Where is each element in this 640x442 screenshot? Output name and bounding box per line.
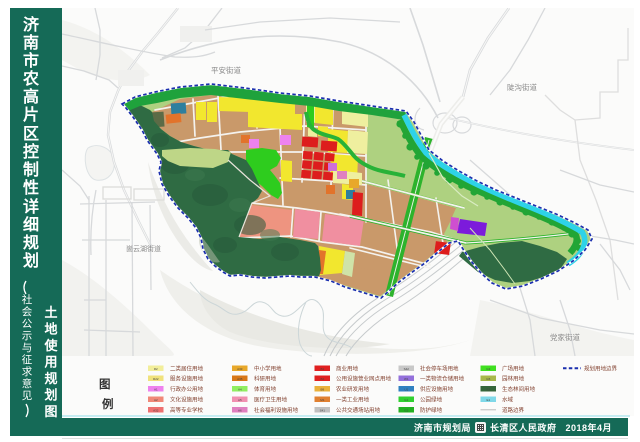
svg-text:图: 图	[44, 404, 57, 419]
svg-text:体育用地: 体育用地	[254, 385, 277, 393]
svg-text:G2: G2	[404, 409, 408, 413]
svg-text:规划用地边界: 规划用地边界	[584, 365, 618, 373]
svg-text:文化设施用地: 文化设施用地	[170, 396, 204, 404]
svg-text:求: 求	[22, 366, 33, 378]
svg-text:A6: A6	[238, 409, 242, 413]
svg-text:R22: R22	[153, 377, 159, 381]
svg-text:S42: S42	[404, 367, 410, 371]
svg-text:A2: A2	[154, 398, 158, 402]
svg-text:图: 图	[99, 377, 111, 391]
svg-text:与: 与	[22, 342, 33, 354]
svg-text:医疗卫生用地: 医疗卫生用地	[254, 396, 288, 404]
svg-text:征: 征	[22, 354, 33, 366]
svg-text:公共交通场站用地: 公共交通场站用地	[336, 406, 381, 414]
svg-text:B9: B9	[320, 388, 324, 392]
svg-text:会: 会	[22, 305, 33, 318]
svg-text:见: 见	[22, 390, 33, 402]
svg-text:农业研发用地: 农业研发用地	[336, 385, 370, 393]
svg-text:规: 规	[44, 371, 57, 386]
svg-text:社会福利设施用地: 社会福利设施用地	[254, 406, 299, 414]
svg-text:高: 高	[23, 87, 39, 106]
svg-text:S41: S41	[320, 409, 326, 413]
svg-text:A32: A32	[153, 409, 159, 413]
svg-text:水域: 水域	[502, 396, 514, 404]
svg-text:用: 用	[43, 355, 57, 370]
svg-text:平安街道: 平安街道	[211, 65, 241, 75]
svg-text:细: 细	[23, 215, 39, 234]
svg-text:例: 例	[102, 397, 114, 411]
svg-text:制: 制	[23, 161, 39, 179]
svg-text:控: 控	[23, 142, 39, 161]
svg-text:意: 意	[22, 377, 33, 390]
svg-text:详: 详	[23, 197, 39, 216]
svg-text:地: 地	[44, 322, 57, 337]
svg-text:G5: G5	[486, 377, 490, 381]
svg-text:一类工业用地: 一类工业用地	[336, 396, 370, 404]
svg-text:行政办公用地: 行政办公用地	[170, 385, 204, 393]
svg-text:广场用地: 广场用地	[502, 365, 525, 373]
svg-text:陡沟街道: 陡沟街道	[507, 82, 537, 92]
svg-text:A5: A5	[238, 398, 242, 402]
svg-text:M1: M1	[320, 398, 324, 402]
svg-text:服务设施用地: 服务设施用地	[170, 375, 204, 383]
svg-text:公: 公	[22, 318, 33, 330]
svg-text:社: 社	[22, 293, 33, 306]
svg-text:A4: A4	[238, 388, 242, 392]
svg-text:划: 划	[44, 388, 57, 403]
svg-text:土: 土	[44, 305, 57, 320]
svg-text:中小学用地: 中小学用地	[254, 365, 282, 373]
svg-text:公园绿地: 公园绿地	[420, 396, 443, 404]
svg-text:园林用地: 园林用地	[502, 375, 525, 383]
svg-text:B4: B4	[320, 377, 324, 381]
svg-text:G3: G3	[486, 367, 490, 371]
svg-text:农: 农	[22, 69, 39, 88]
svg-text:崮云湖街道: 崮云湖街道	[126, 244, 161, 253]
svg-text:科研用地: 科研用地	[254, 375, 277, 383]
svg-text:R2: R2	[154, 367, 158, 371]
svg-text:二类居住用地: 二类居住用地	[170, 365, 204, 373]
svg-text:U1: U1	[404, 388, 408, 392]
svg-text:示: 示	[22, 330, 33, 342]
svg-text:B1: B1	[320, 367, 324, 371]
svg-text:区: 区	[23, 125, 39, 143]
svg-text:南: 南	[23, 33, 39, 52]
svg-text:划: 划	[23, 251, 39, 270]
svg-text:供应设施用地: 供应设施用地	[420, 385, 454, 393]
svg-text:A1: A1	[154, 388, 158, 392]
svg-text:E2: E2	[486, 388, 490, 392]
svg-text:片: 片	[23, 105, 39, 124]
svg-text:A35: A35	[237, 377, 243, 381]
svg-text:公用设施营业网点用地: 公用设施营业网点用地	[336, 375, 392, 383]
svg-text:规: 规	[23, 234, 39, 252]
svg-text:使: 使	[43, 338, 58, 353]
svg-text:社会停车场用地: 社会停车场用地	[420, 365, 459, 373]
svg-text:性: 性	[23, 178, 39, 197]
svg-text:防护绿地: 防护绿地	[420, 406, 443, 414]
svg-text:一类物流仓储用地: 一类物流仓储用地	[420, 375, 465, 383]
svg-text:W1: W1	[404, 377, 409, 381]
svg-text:市: 市	[23, 51, 39, 70]
svg-text:商业用地: 商业用地	[336, 365, 359, 373]
svg-text:A33: A33	[237, 367, 243, 371]
svg-text:济: 济	[23, 15, 40, 34]
svg-text:G1: G1	[404, 398, 408, 402]
svg-text:E1: E1	[486, 398, 490, 402]
svg-text:生态林间用地: 生态林间用地	[502, 385, 536, 393]
svg-text:高等专业学校: 高等专业学校	[170, 406, 204, 414]
svg-text:道路边界: 道路边界	[502, 406, 525, 414]
svg-text:党家街道: 党家街道	[550, 332, 580, 342]
